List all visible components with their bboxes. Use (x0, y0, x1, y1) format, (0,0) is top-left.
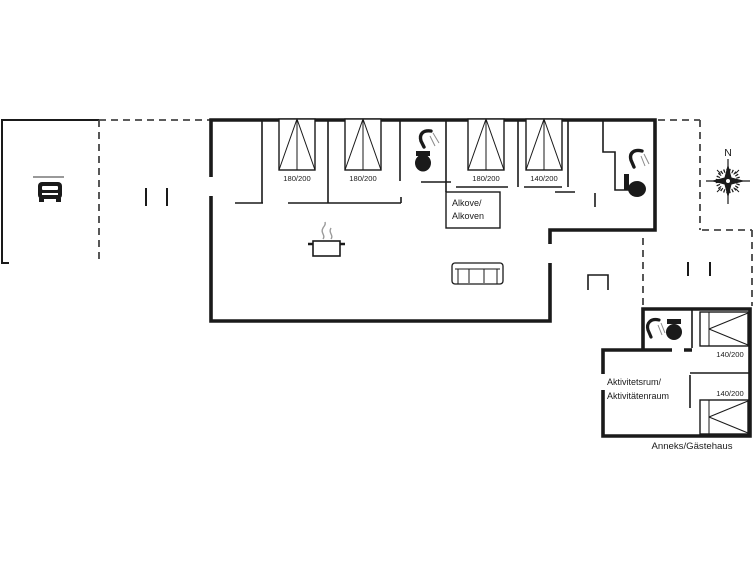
terrace-dashed-lines (643, 120, 752, 306)
annex-room-label-line2: Aktivitätenraum (607, 391, 669, 401)
bed-size-label: 140/200 (716, 389, 743, 398)
compass-rose: N (706, 147, 750, 204)
carport-posts (146, 188, 167, 206)
bed-size-label: 180/200 (472, 174, 499, 183)
bathroom-annex (648, 319, 682, 340)
alkove-label-line2: Alkoven (452, 211, 484, 221)
alkove-label-line1: Alkove/ (452, 198, 482, 208)
car-icon (33, 177, 64, 202)
floor-plan-page: 180/200 180/200 180/200 (0, 0, 755, 566)
bed-size-label: 180/200 (283, 174, 310, 183)
shower-icon (420, 131, 439, 147)
bed-size-label: 180/200 (349, 174, 376, 183)
main-house-exterior-walls (211, 120, 655, 321)
bed-size-label: 140/200 (530, 174, 557, 183)
toilet-icon (666, 319, 682, 340)
annex-room-label-line1: Aktivitetsrum/ (607, 377, 662, 387)
outdoor-table (588, 275, 608, 290)
sofa-icon (452, 263, 503, 284)
carport (2, 120, 211, 263)
bathroom-middle (415, 131, 439, 172)
main-house: 180/200 180/200 180/200 (211, 119, 655, 321)
bed-size-label: 140/200 (716, 350, 743, 359)
shower-icon (631, 150, 649, 167)
double-bed-3 (468, 119, 504, 170)
annex-bed-1 (700, 312, 748, 346)
toilet-icon (415, 151, 431, 172)
carport-dashed-roof-outline (99, 120, 211, 263)
toilet-icon (624, 174, 646, 197)
double-bed-4 (526, 119, 562, 170)
double-bed-2 (345, 119, 381, 170)
shower-icon (648, 320, 665, 337)
compass-center (726, 179, 730, 183)
double-bed-1 (279, 119, 315, 170)
steam-icon (322, 222, 332, 239)
floor-plan-drawing: 180/200 180/200 180/200 (0, 0, 755, 566)
stove-pot-icon (308, 222, 345, 256)
annex-caption: Anneks/Gästehaus (651, 441, 732, 452)
compass-north-label: N (724, 147, 732, 159)
annex-bed-2 (700, 400, 748, 434)
annex: 140/200 140/200 Aktivitetsrum/ Aktivität… (603, 309, 750, 452)
pergola-posts (688, 262, 710, 276)
alkove-room: Alkove/ Alkoven (446, 192, 500, 228)
